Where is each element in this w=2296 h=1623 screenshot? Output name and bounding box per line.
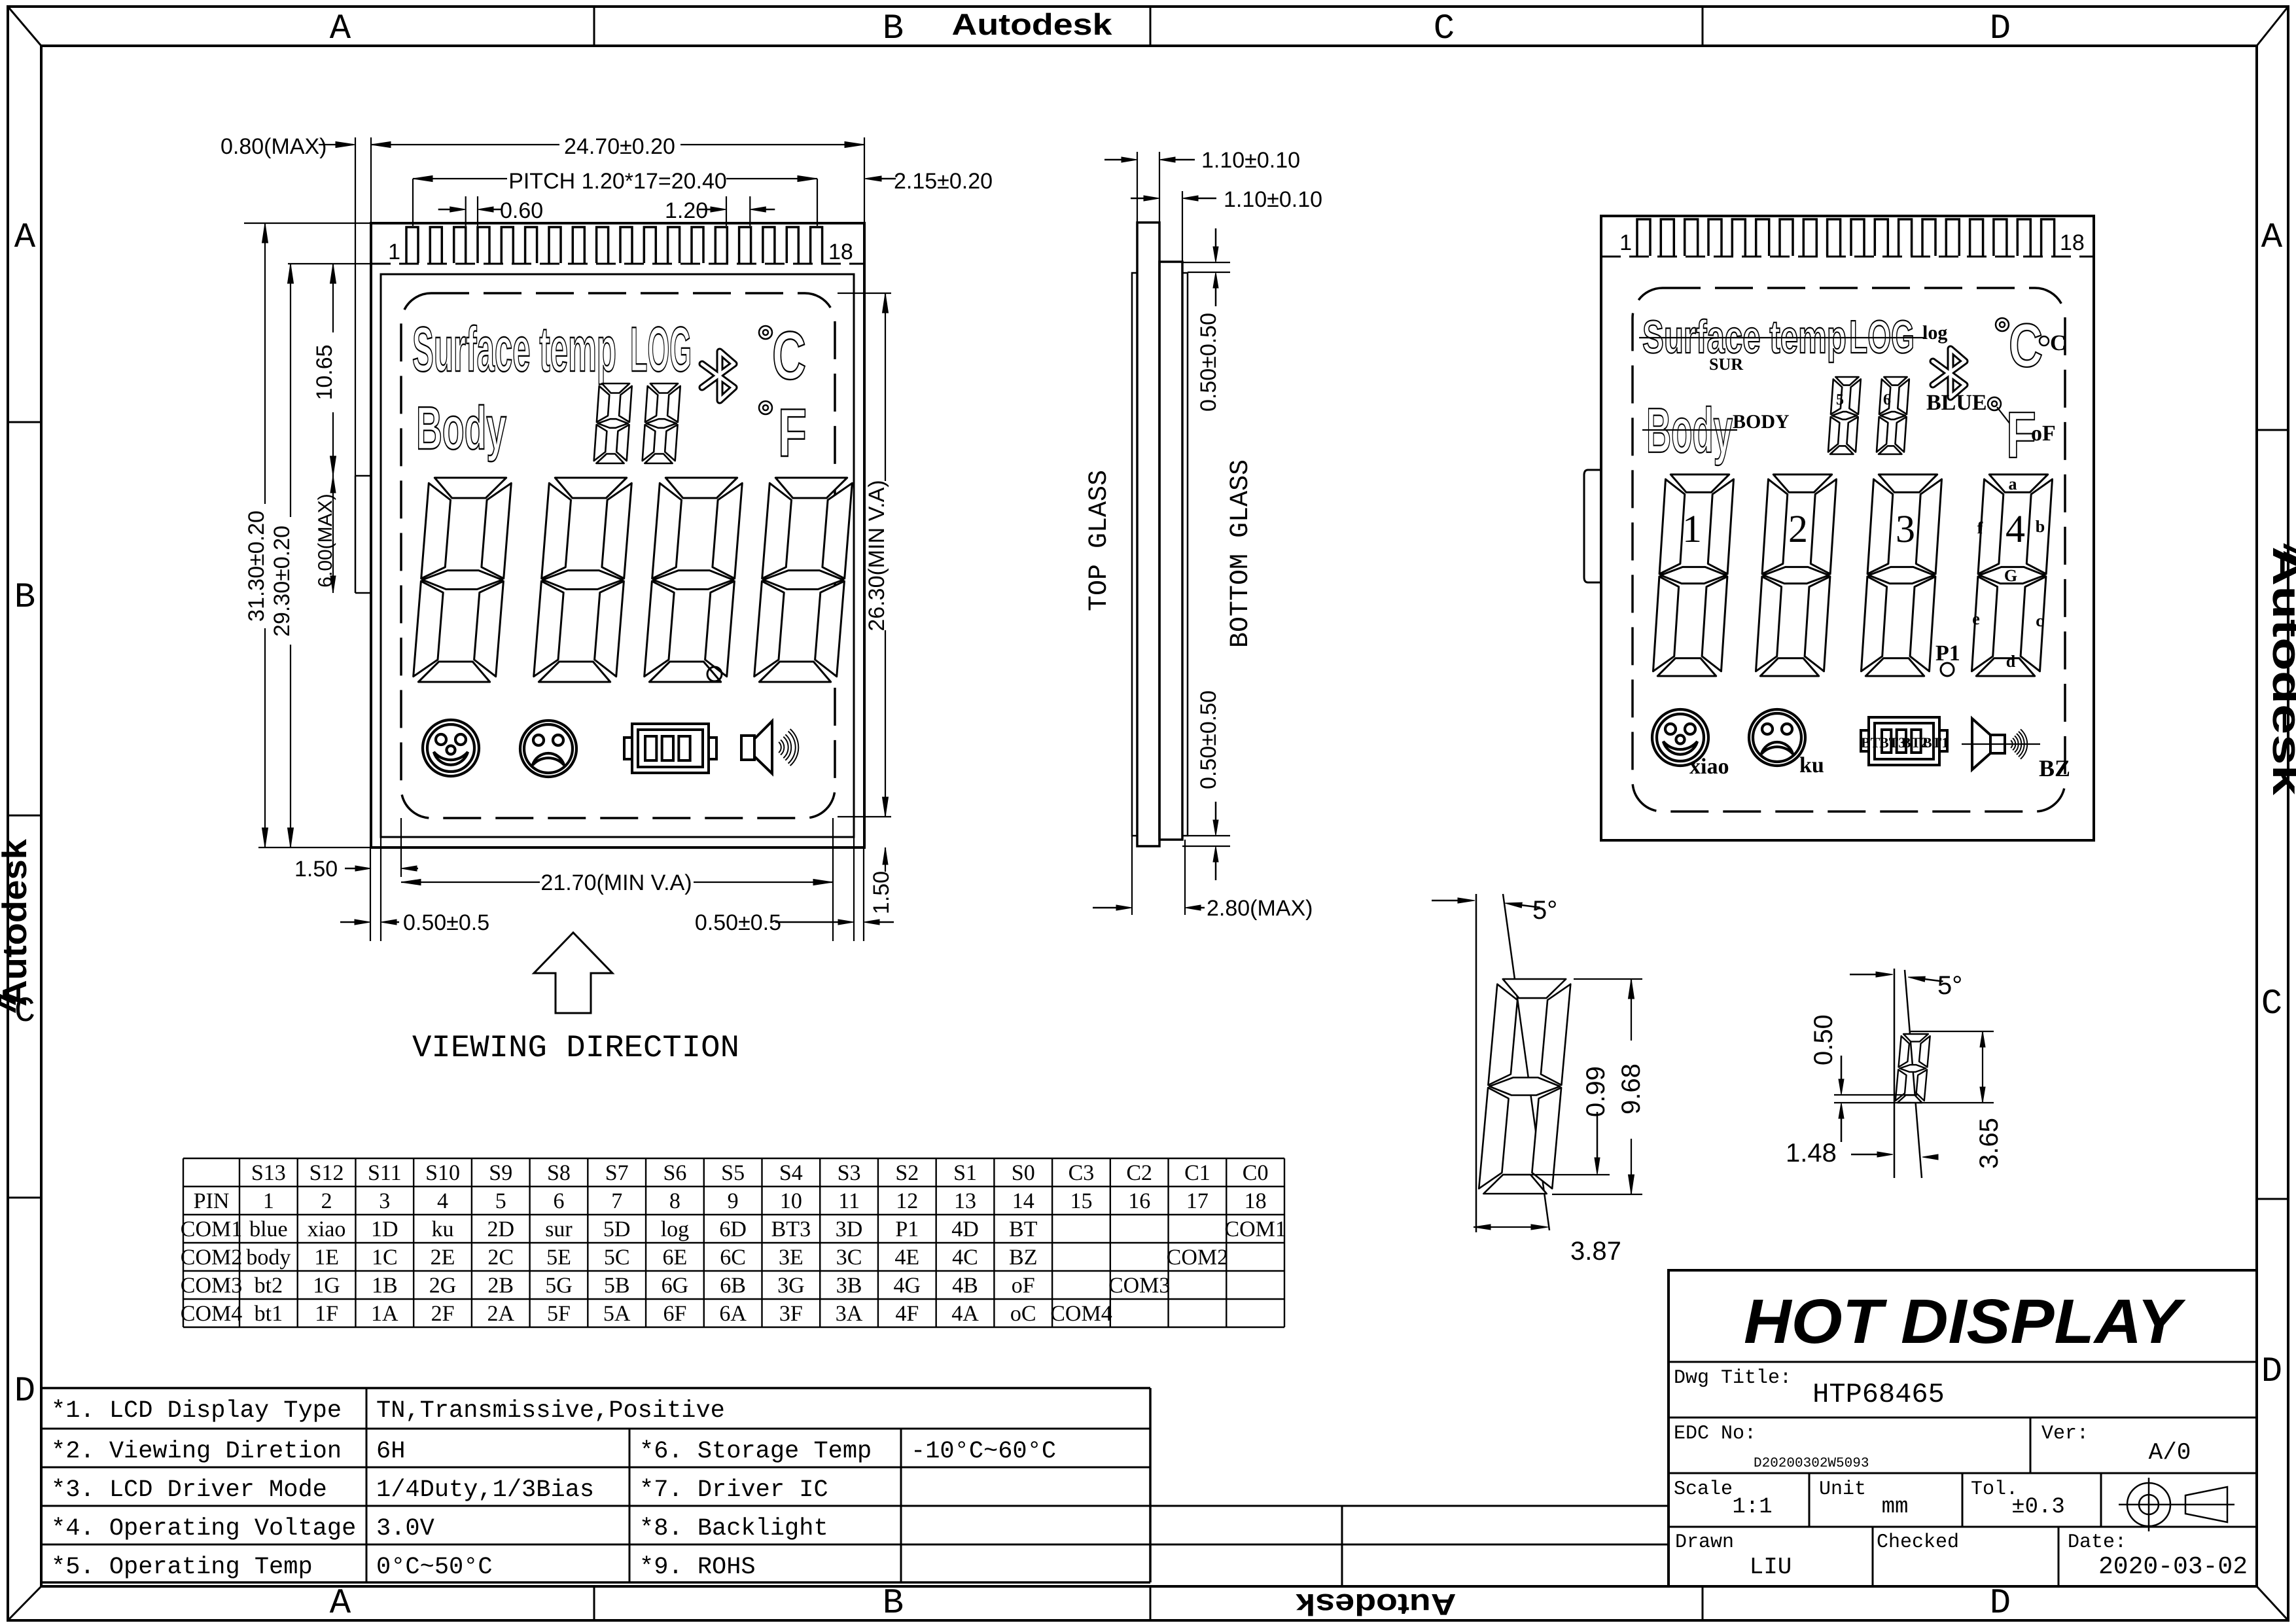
svg-text:C0: C0 (1243, 1161, 1269, 1185)
svg-text:18: 18 (1245, 1189, 1267, 1213)
svg-text:A: A (330, 9, 351, 49)
svg-text:b: b (2036, 517, 2045, 536)
svg-text:2: 2 (321, 1189, 332, 1213)
svg-text:COM3: COM3 (181, 1274, 242, 1298)
svg-text:S12: S12 (309, 1161, 344, 1185)
svg-text:2C: 2C (487, 1245, 514, 1270)
svg-text:17: 17 (1186, 1189, 1209, 1213)
svg-text:1: 1 (263, 1189, 274, 1213)
svg-text:bt2: bt2 (255, 1274, 283, 1298)
svg-text:oF: oF (1012, 1274, 1035, 1298)
svg-text:body: body (246, 1245, 291, 1270)
svg-text:COM2: COM2 (1167, 1245, 1228, 1270)
svg-text:21.70(MIN V.A): 21.70(MIN V.A) (540, 870, 692, 895)
svg-text:3B: 3B (836, 1274, 862, 1298)
svg-text:*8. Backlight: *8. Backlight (639, 1515, 828, 1543)
svg-text:S10: S10 (425, 1161, 460, 1185)
svg-text:6F: 6F (663, 1302, 686, 1326)
svg-text:6A: 6A (719, 1302, 747, 1326)
svg-text:*6. Storage Temp: *6. Storage Temp (639, 1438, 872, 1465)
svg-text:3A: 3A (836, 1302, 863, 1326)
svg-text:3F: 3F (779, 1302, 803, 1326)
svg-text:S1: S1 (953, 1161, 977, 1185)
svg-text:1.10±0.10: 1.10±0.10 (1224, 187, 1322, 212)
svg-text:C: C (2261, 984, 2282, 1024)
svg-text:1: 1 (1682, 507, 1702, 550)
svg-text:31.30±0.20: 31.30±0.20 (244, 510, 269, 622)
svg-text:6B: 6B (720, 1274, 746, 1298)
svg-text:B: B (883, 9, 904, 49)
svg-text:3: 3 (379, 1189, 390, 1213)
svg-text:0.50: 0.50 (1809, 1014, 1838, 1065)
svg-text:ku: ku (1799, 753, 1824, 777)
svg-text:C3: C3 (1069, 1161, 1095, 1185)
svg-text:C: C (2050, 331, 2066, 355)
svg-text:Date:: Date: (2068, 1531, 2127, 1554)
svg-text:0.50±0.50: 0.50±0.50 (1196, 690, 1221, 789)
svg-text:P1: P1 (895, 1217, 919, 1241)
svg-text:BT: BT (1861, 734, 1881, 751)
svg-text:HTP68465: HTP68465 (1812, 1379, 1945, 1410)
svg-text:0.80(MAX): 0.80(MAX) (221, 134, 327, 159)
svg-text:LIU: LIU (1750, 1554, 1792, 1580)
svg-text:C: C (1434, 9, 1455, 49)
svg-text:xiao: xiao (1689, 755, 1729, 779)
svg-text:4: 4 (2005, 507, 2025, 550)
svg-text:-10°C~60°C: -10°C~60°C (911, 1438, 1056, 1465)
svg-text:3C: 3C (836, 1245, 862, 1270)
svg-text:xiao: xiao (308, 1217, 346, 1241)
svg-text:B: B (14, 578, 35, 618)
svg-text:S7: S7 (605, 1161, 629, 1185)
svg-text:PIN: PIN (194, 1189, 230, 1213)
svg-text:2D: 2D (487, 1217, 514, 1241)
svg-text:5°: 5° (1937, 971, 1962, 1000)
svg-text:*1. LCD Display Type: *1. LCD Display Type (51, 1397, 342, 1425)
svg-text:1.48: 1.48 (1786, 1139, 1837, 1168)
svg-text:Checked: Checked (1877, 1531, 1959, 1554)
svg-text:COM1: COM1 (1224, 1217, 1286, 1241)
svg-text:S13: S13 (251, 1161, 286, 1185)
svg-text:1.50: 1.50 (869, 871, 894, 914)
svg-text:S4: S4 (779, 1161, 803, 1185)
svg-text:EDC No:: EDC No: (1674, 1423, 1756, 1445)
svg-text:2E: 2E (431, 1245, 455, 1270)
svg-text:4: 4 (437, 1189, 448, 1213)
svg-text:LOG: LOG (630, 313, 692, 385)
svg-text:F: F (778, 395, 807, 471)
svg-text:P1: P1 (1935, 641, 1960, 666)
svg-text:2B: 2B (487, 1274, 514, 1298)
svg-text:BOTTOM GLASS: BOTTOM GLASS (1226, 459, 1256, 648)
svg-text:D: D (1990, 9, 2011, 49)
svg-text:4D: 4D (951, 1217, 979, 1241)
svg-text:G: G (2004, 566, 2017, 585)
svg-text:ku: ku (432, 1217, 454, 1241)
svg-text:1:1: 1:1 (1732, 1495, 1772, 1520)
svg-text:5: 5 (1836, 391, 1844, 408)
svg-text:VIEWING DIRECTION: VIEWING DIRECTION (412, 1031, 739, 1066)
svg-text:4B: 4B (952, 1274, 978, 1298)
svg-text:6: 6 (553, 1189, 564, 1213)
svg-text:Autodesk: Autodesk (952, 7, 1112, 41)
svg-text:0.50±0.5: 0.50±0.5 (695, 910, 781, 935)
svg-text:5E: 5E (546, 1245, 571, 1270)
svg-text:7: 7 (611, 1189, 622, 1213)
svg-text:Scale: Scale (1674, 1478, 1733, 1501)
svg-text:oC: oC (1010, 1302, 1036, 1326)
svg-text:2.15±0.20: 2.15±0.20 (894, 169, 993, 194)
svg-text:9: 9 (728, 1189, 739, 1213)
svg-text:6E: 6E (663, 1245, 688, 1270)
svg-text:Autodesk: Autodesk (0, 839, 34, 1007)
svg-text:12: 12 (896, 1189, 918, 1213)
svg-text:9.68: 9.68 (1617, 1063, 1646, 1115)
svg-text:4A: 4A (951, 1302, 979, 1326)
svg-text:Autodesk: Autodesk (2264, 546, 2296, 796)
svg-text:Body: Body (416, 394, 506, 462)
svg-text:A: A (14, 218, 36, 258)
svg-text:blue: blue (249, 1217, 288, 1241)
svg-text:TN,Transmissive,Positive: TN,Transmissive,Positive (376, 1397, 725, 1425)
svg-text:2.80(MAX): 2.80(MAX) (1207, 896, 1313, 921)
svg-text:1D: 1D (371, 1217, 398, 1241)
svg-text:S11: S11 (368, 1161, 402, 1185)
svg-text:14: 14 (1012, 1189, 1034, 1213)
svg-text:e: e (1972, 609, 1980, 628)
svg-text:S3: S3 (838, 1161, 861, 1185)
svg-text:bt1: bt1 (255, 1302, 283, 1326)
svg-text:1G: 1G (313, 1274, 340, 1298)
svg-text:*7. Driver IC: *7. Driver IC (639, 1476, 828, 1504)
svg-text:3.65: 3.65 (1975, 1118, 2004, 1169)
svg-text:6H: 6H (376, 1438, 405, 1465)
svg-text:13: 13 (954, 1189, 976, 1213)
svg-text:4C: 4C (952, 1245, 978, 1270)
svg-text:B: B (883, 1584, 904, 1623)
svg-text:5C: 5C (604, 1245, 630, 1270)
svg-text:PITCH 1.20*17=20.40: PITCH 1.20*17=20.40 (508, 169, 727, 194)
svg-text:16: 16 (1128, 1189, 1150, 1213)
svg-text:C1: C1 (1184, 1161, 1210, 1185)
svg-text:8: 8 (669, 1189, 680, 1213)
svg-text:C: C (772, 318, 806, 394)
svg-text:0.99: 0.99 (1581, 1066, 1610, 1117)
svg-text:a: a (2009, 474, 2017, 493)
svg-text:4F: 4F (895, 1302, 919, 1326)
svg-text:BZ: BZ (1009, 1245, 1037, 1270)
svg-text:oF: oF (2031, 421, 2056, 446)
svg-text:6C: 6C (720, 1245, 746, 1270)
svg-text:0.60: 0.60 (500, 198, 543, 223)
svg-text:S2: S2 (895, 1161, 919, 1185)
svg-text:3E: 3E (779, 1245, 804, 1270)
svg-text:BODY: BODY (1733, 411, 1790, 433)
svg-text:29.30±0.20: 29.30±0.20 (270, 526, 294, 637)
svg-text:4E: 4E (894, 1245, 919, 1270)
svg-text:0.50±0.50: 0.50±0.50 (1196, 313, 1221, 412)
svg-text:Drawn: Drawn (1675, 1531, 1734, 1554)
svg-text:5G: 5G (545, 1274, 573, 1298)
svg-text:BT3: BT3 (771, 1217, 811, 1241)
svg-text:2: 2 (1788, 507, 1808, 550)
svg-text:6.00(MAX): 6.00(MAX) (315, 493, 336, 587)
svg-text:2F: 2F (431, 1302, 455, 1326)
svg-text:18: 18 (2060, 230, 2085, 255)
svg-text:Autodesk: Autodesk (1296, 1588, 1456, 1622)
svg-text:0°C~50°C: 0°C~50°C (376, 1554, 493, 1581)
svg-text:6D: 6D (719, 1217, 747, 1241)
svg-text:1A: 1A (371, 1302, 398, 1326)
svg-text:1: 1 (388, 240, 400, 264)
svg-text:5A: 5A (603, 1302, 631, 1326)
svg-text:4G: 4G (894, 1274, 921, 1298)
svg-text:D: D (14, 1372, 35, 1412)
svg-text:5B: 5B (604, 1274, 630, 1298)
svg-text:S9: S9 (489, 1161, 512, 1185)
svg-text:10: 10 (780, 1189, 802, 1213)
svg-text:3: 3 (1896, 507, 1915, 550)
svg-text:D20200302W5093: D20200302W5093 (1754, 1456, 1869, 1471)
svg-text:2G: 2G (429, 1274, 457, 1298)
svg-text:1C: 1C (372, 1245, 398, 1270)
svg-text:C2: C2 (1126, 1161, 1152, 1185)
svg-text:Dwg Title:: Dwg Title: (1674, 1367, 1792, 1389)
svg-text:log: log (661, 1217, 689, 1241)
svg-text:0.50±0.5: 0.50±0.5 (403, 910, 489, 935)
svg-text:2020-03-02: 2020-03-02 (2098, 1553, 2248, 1581)
svg-text:*2. Viewing Diretion: *2. Viewing Diretion (51, 1438, 342, 1465)
svg-text:sur: sur (545, 1217, 573, 1241)
svg-text:±0.3: ±0.3 (2011, 1495, 2065, 1520)
svg-text:*3. LCD Driver Mode: *3. LCD Driver Mode (51, 1476, 327, 1504)
svg-text:1E: 1E (314, 1245, 339, 1270)
svg-text:1.20: 1.20 (665, 198, 708, 223)
svg-text:mm: mm (1882, 1495, 1909, 1520)
svg-text:1.10±0.10: 1.10±0.10 (1201, 148, 1300, 173)
svg-text:S8: S8 (547, 1161, 571, 1185)
svg-text:BZ: BZ (2039, 755, 2070, 781)
svg-text:3.87: 3.87 (1570, 1237, 1621, 1266)
svg-text:BT: BT (1009, 1217, 1038, 1241)
svg-text:C: C (2009, 311, 2043, 380)
svg-text:BT1: BT1 (1922, 734, 1949, 751)
svg-text:Ver:: Ver: (2041, 1423, 2089, 1445)
svg-text:f: f (1977, 518, 1983, 537)
svg-text:1.50: 1.50 (294, 857, 338, 882)
svg-text:3D: 3D (836, 1217, 863, 1241)
svg-text:S0: S0 (1012, 1161, 1035, 1185)
svg-text:D: D (2261, 1352, 2282, 1392)
svg-text:11: 11 (838, 1189, 860, 1213)
svg-text:log: log (1922, 322, 1947, 344)
svg-text:COM3: COM3 (1108, 1274, 1170, 1298)
svg-text:HOT DISPLAY: HOT DISPLAY (1744, 1287, 2186, 1357)
svg-text:3.0V: 3.0V (376, 1515, 434, 1543)
svg-text:10.65: 10.65 (312, 344, 337, 400)
svg-text:5°: 5° (1532, 896, 1557, 925)
svg-text:S6: S6 (663, 1161, 686, 1185)
svg-text:COM4: COM4 (181, 1302, 242, 1326)
svg-text:BLUE: BLUE (1926, 391, 1987, 415)
svg-text:D: D (1990, 1584, 2011, 1623)
svg-text:*4. Operating Voltage: *4. Operating Voltage (51, 1515, 356, 1543)
svg-text:S5: S5 (721, 1161, 745, 1185)
svg-text:6G: 6G (662, 1274, 689, 1298)
svg-text:*9. ROHS: *9. ROHS (639, 1554, 756, 1581)
svg-text:15: 15 (1070, 1189, 1092, 1213)
svg-text:18: 18 (828, 240, 853, 264)
svg-text:c: c (2036, 611, 2043, 630)
svg-text:3G: 3G (777, 1274, 805, 1298)
svg-text:A: A (330, 1584, 351, 1623)
svg-text:SUR: SUR (1709, 355, 1743, 374)
svg-text:2A: 2A (487, 1302, 514, 1326)
svg-text:5D: 5D (603, 1217, 631, 1241)
svg-text:TOP GLASS: TOP GLASS (1085, 470, 1114, 611)
svg-text:5: 5 (495, 1189, 506, 1213)
svg-text:6: 6 (1883, 391, 1891, 408)
svg-text:1F: 1F (315, 1302, 338, 1326)
svg-text:1B: 1B (372, 1274, 398, 1298)
svg-text:Unit: Unit (1819, 1478, 1866, 1501)
svg-text:COM4: COM4 (1050, 1302, 1112, 1326)
svg-text:26.30(MIN V.A): 26.30(MIN V.A) (864, 480, 889, 631)
svg-text:COM2: COM2 (181, 1245, 242, 1270)
svg-text:1/4Duty,1/3Bias: 1/4Duty,1/3Bias (376, 1476, 594, 1504)
svg-text:5F: 5F (547, 1302, 571, 1326)
svg-text:A/0: A/0 (2149, 1439, 2191, 1466)
svg-text:Surface temp: Surface temp (412, 313, 616, 385)
svg-text:COM1: COM1 (181, 1217, 242, 1241)
svg-text:d: d (2006, 652, 2016, 671)
svg-text:*5. Operating Temp: *5. Operating Temp (51, 1554, 313, 1581)
svg-text:A: A (2261, 218, 2283, 258)
svg-text:1: 1 (1619, 230, 1632, 255)
svg-text:24.70±0.20: 24.70±0.20 (564, 134, 675, 159)
